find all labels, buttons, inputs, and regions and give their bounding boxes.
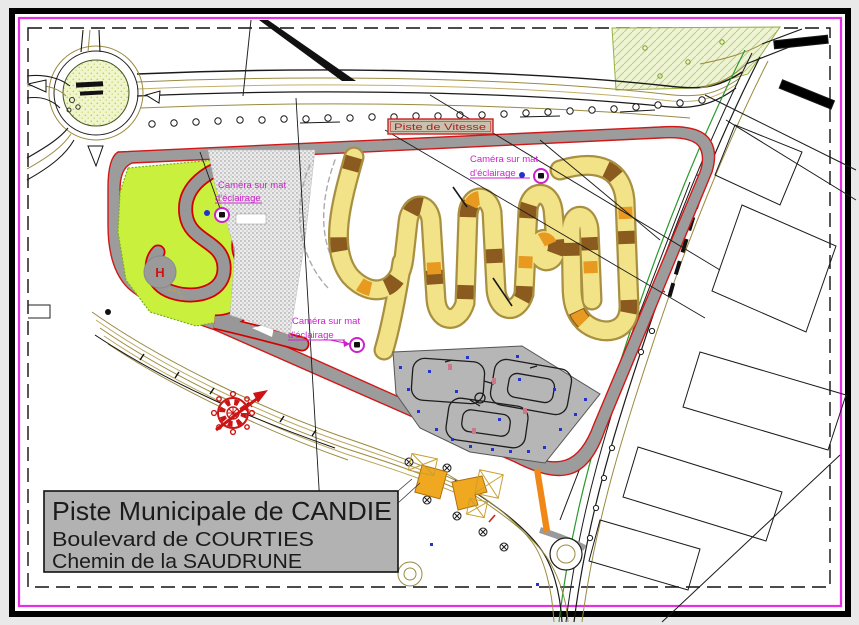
track-name-label: Piste de Vitesse	[388, 119, 493, 134]
helipad-letter: H	[155, 265, 164, 280]
cul-de-sac	[550, 538, 582, 570]
camera-3-line-1: Caméra sur mat	[292, 316, 360, 327]
camera-2-line-1: Caméra sur mat	[470, 154, 538, 165]
camera-3-line-2: d'éclairage	[288, 330, 334, 341]
camera-1-line-1: Caméra sur mat	[218, 180, 286, 191]
title-line-3: Chemin de la SAUDRUNE	[52, 550, 302, 573]
camera-1-line-2: d'éclairage	[215, 193, 261, 204]
site-plan-drawing: H	[0, 0, 859, 625]
cad-sheet: H	[0, 0, 859, 625]
title-block: Piste Municipale de CANDIE Boulevard de …	[44, 479, 420, 573]
title-line-2: Boulevard de COURTIES	[52, 528, 314, 551]
track-name-text: Piste de Vitesse	[394, 122, 486, 133]
title-line-1: Piste Municipale de CANDIE	[52, 496, 392, 526]
camera-2-line-2: d'éclairage	[470, 168, 516, 179]
